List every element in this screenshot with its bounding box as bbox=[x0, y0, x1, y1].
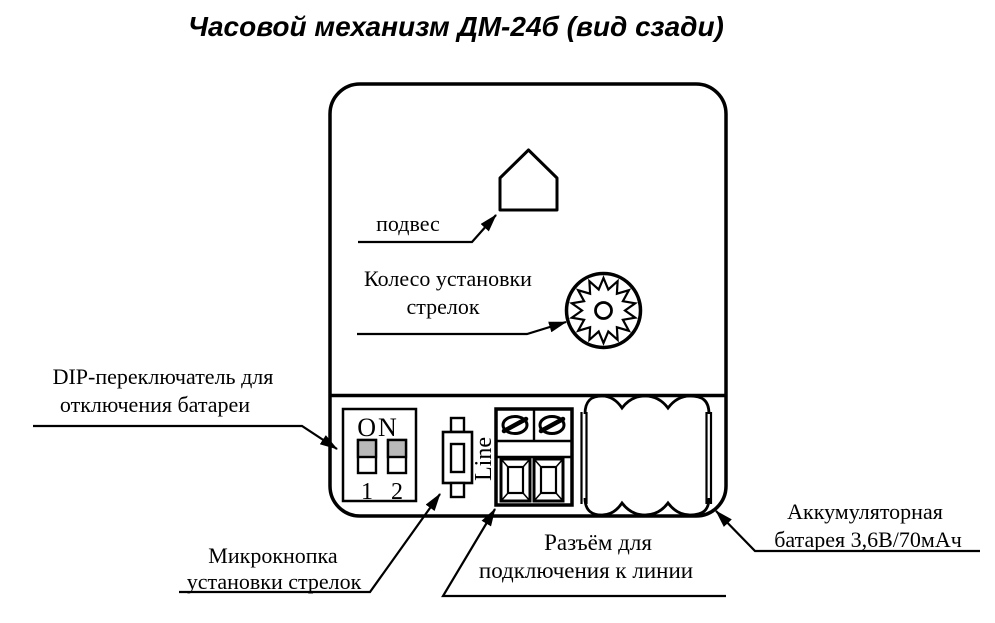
wheel-label-line1: Колесо установки bbox=[364, 266, 532, 291]
dip-switch-1-number: 1 bbox=[361, 479, 373, 505]
micro-button-bottom-tab bbox=[451, 483, 464, 497]
wheel-label-line2: стрелок bbox=[406, 294, 479, 319]
dip-switch: ON 1 2 bbox=[343, 409, 416, 505]
connector-label-line1: Разъём для bbox=[544, 530, 652, 555]
connector-label-line2: подключения к линии bbox=[479, 558, 693, 583]
wheel-outer-circle bbox=[567, 274, 641, 348]
hand-setting-wheel bbox=[567, 274, 641, 348]
micro-button-plunger bbox=[451, 444, 464, 472]
battery-label-line2: батарея 3,6В/70мАч bbox=[774, 527, 962, 552]
terminal-opening-right bbox=[534, 459, 563, 501]
micro-label-line1: Микрокнопка bbox=[208, 543, 338, 568]
dip-switch-2-number: 2 bbox=[391, 479, 403, 505]
callout-arrow-dip-switch bbox=[33, 426, 337, 449]
battery-label-line1: Аккумуляторная bbox=[787, 499, 943, 524]
dip-on-label: ON bbox=[357, 413, 399, 442]
dip-switch-2-slider bbox=[388, 440, 406, 457]
line-terminal-block bbox=[496, 409, 572, 505]
dip-label-line1: DIP-переключатель для bbox=[53, 364, 274, 389]
micro-button-top-tab bbox=[451, 418, 464, 432]
diagram-title: Часовой механизм ДМ-24б (вид сзади) bbox=[188, 11, 724, 42]
clock-mechanism-diagram: Часовой механизм ДМ-24б (вид сзади) ON 1… bbox=[0, 0, 995, 623]
micro-label-line2: установки стрелок bbox=[187, 569, 362, 594]
terminal-opening-left bbox=[501, 459, 530, 501]
line-terminal-label: Line bbox=[471, 437, 497, 481]
diagram-canvas: Часовой механизм ДМ-24б (вид сзади) ON 1… bbox=[0, 0, 995, 623]
hanger-label: подвес bbox=[376, 211, 440, 236]
dip-label-line2: отключения батареи bbox=[60, 392, 250, 417]
dip-switch-1-slider bbox=[358, 440, 376, 457]
